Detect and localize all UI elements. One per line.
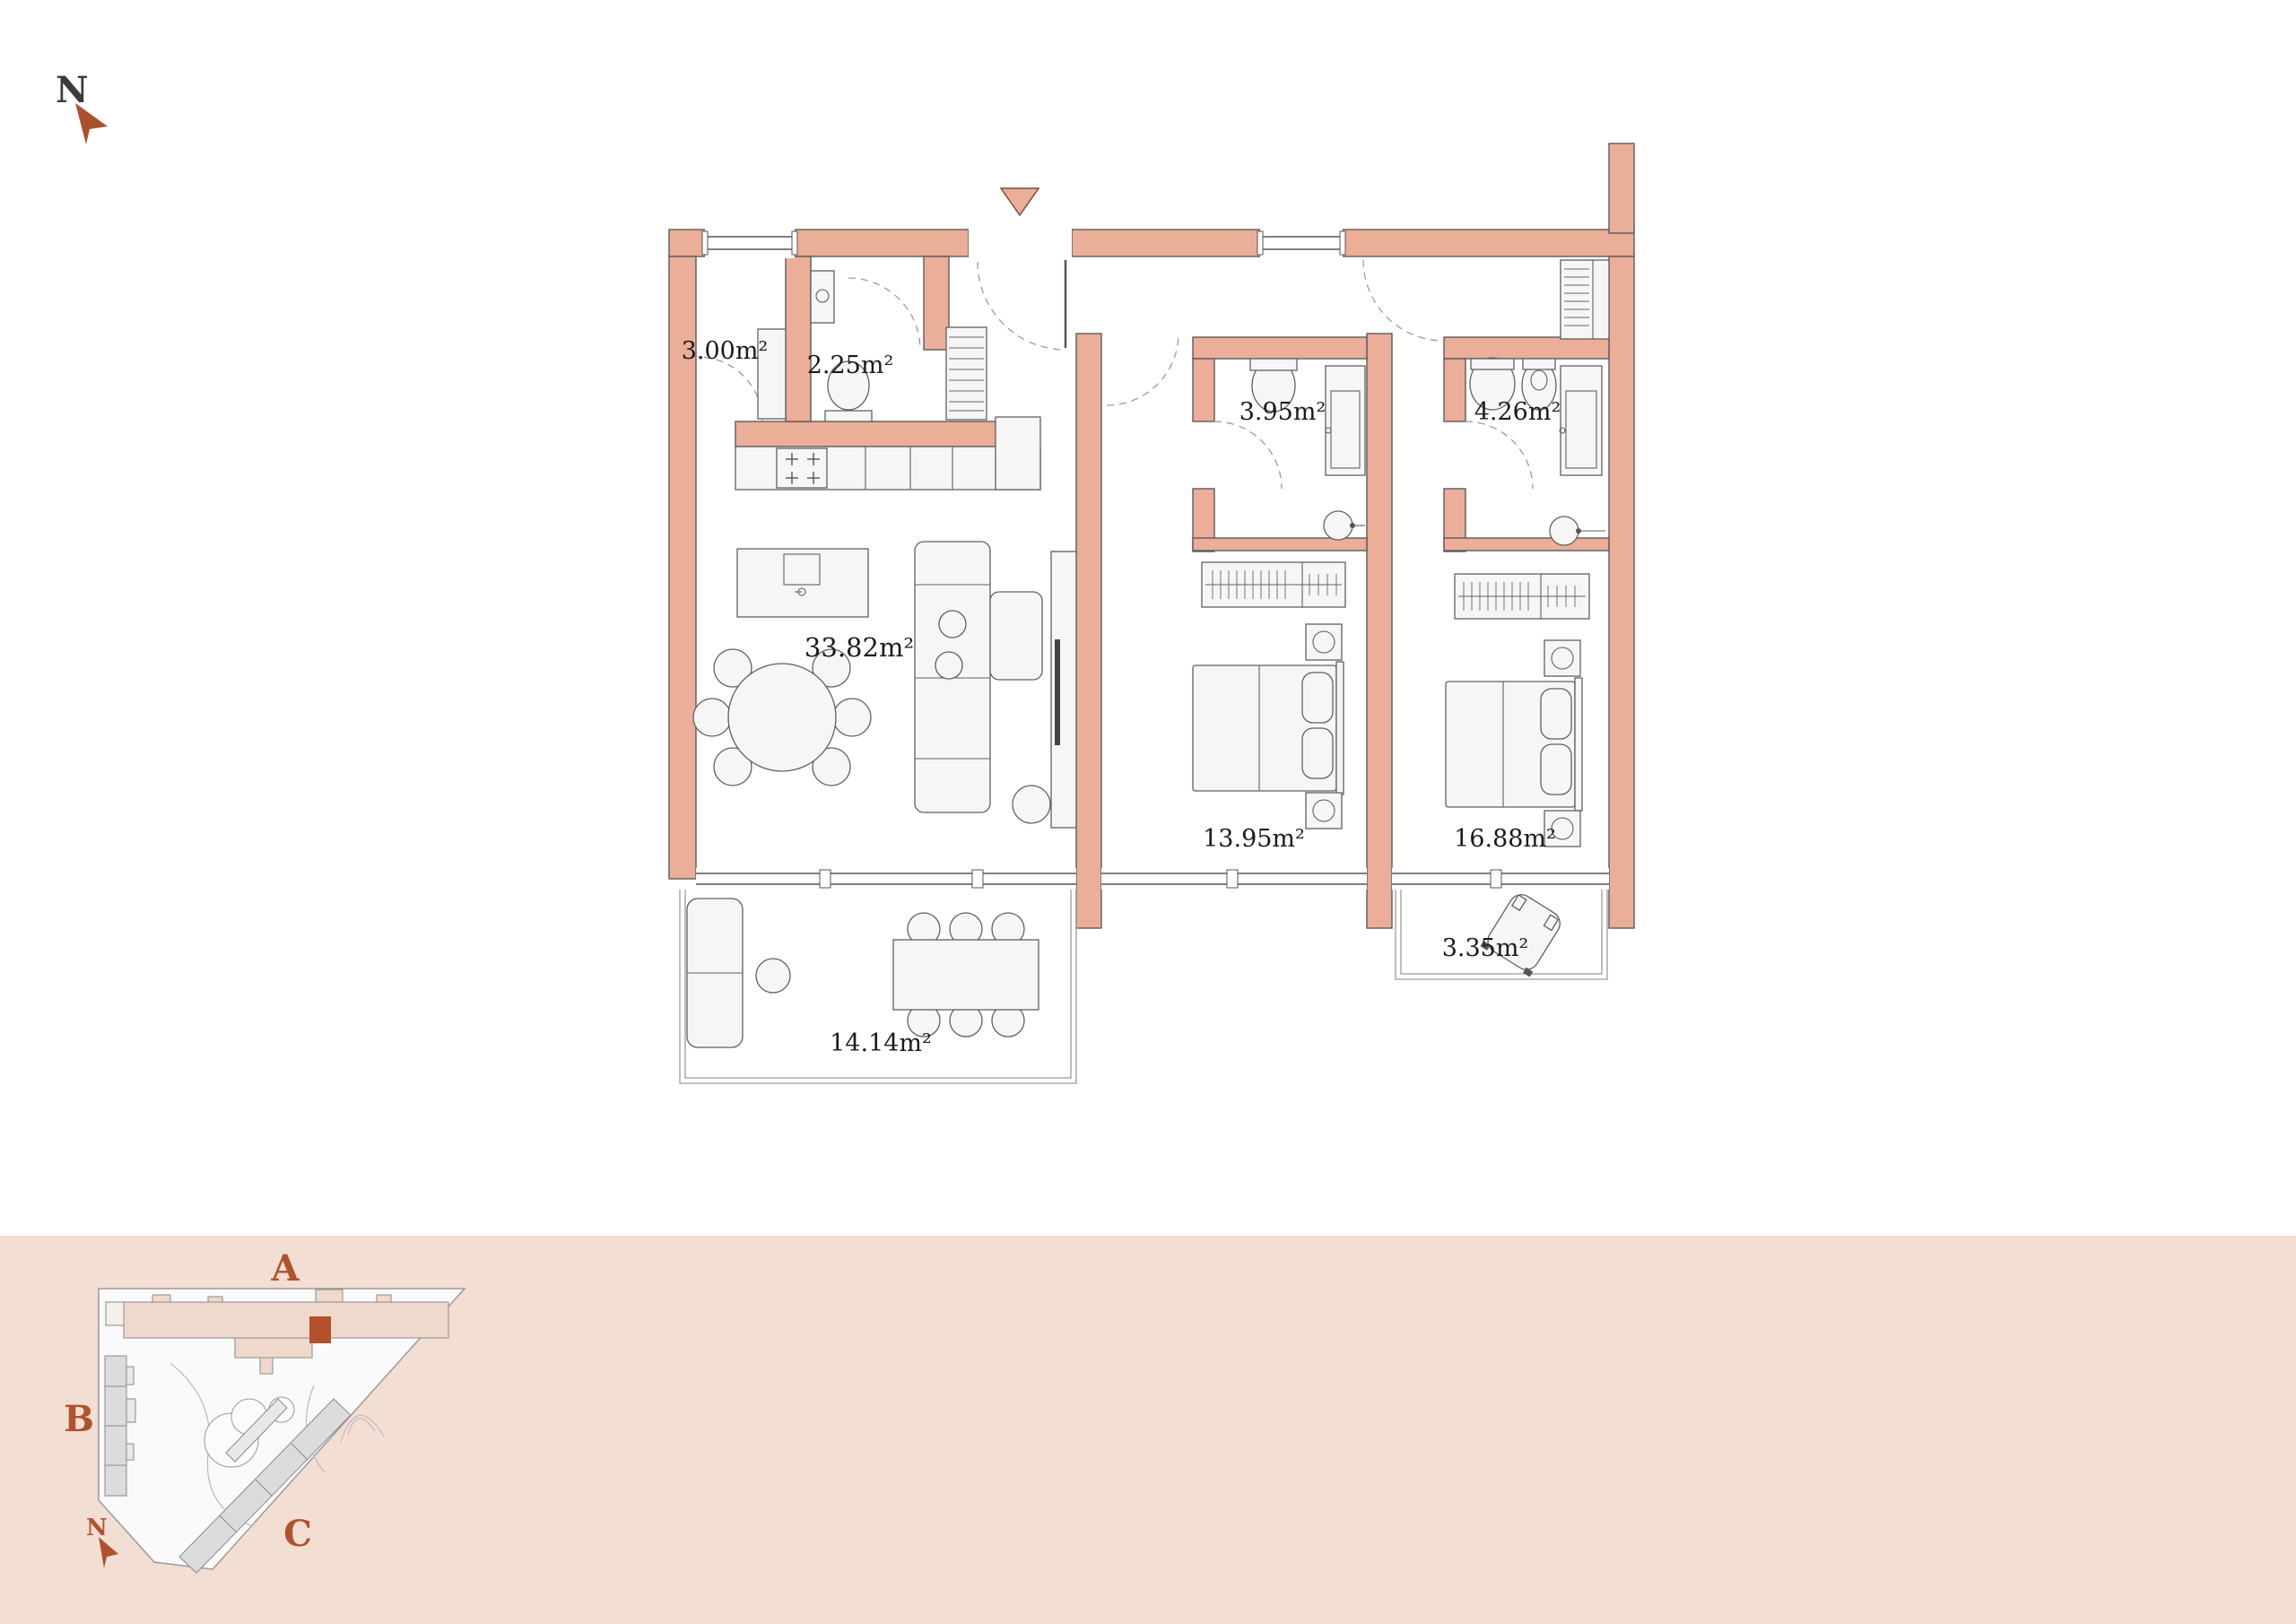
window-bedroom-2	[1392, 868, 1609, 890]
site-north-arrow: N	[86, 1515, 118, 1568]
window-top-left	[702, 228, 797, 258]
label-terrace: 14.14m²	[830, 1029, 932, 1057]
north-arrow-icon	[75, 103, 108, 144]
bed-1	[1193, 662, 1344, 795]
walls	[669, 143, 1634, 928]
label-bedroom-2: 16.88m²	[1454, 825, 1556, 853]
label-balcony: 3.35m²	[1442, 934, 1529, 962]
entry-closet	[1561, 260, 1609, 339]
side-table	[756, 959, 790, 993]
site-label-a: A	[270, 1247, 300, 1290]
entrance-marker-icon	[1001, 188, 1039, 215]
north-arrow-label: N	[56, 69, 89, 111]
sofa	[915, 542, 1042, 812]
label-bathroom-1: 3.95m²	[1239, 398, 1326, 426]
pouf	[1013, 786, 1050, 823]
label-hall-storage: 3.00m²	[682, 337, 769, 365]
floorplan-sheet: .wall{fill:#EBAE99;stroke:#5b5b5b;stroke…	[0, 0, 2296, 1624]
bedroom-1-furniture	[1193, 562, 1345, 829]
site-label-c: C	[283, 1513, 312, 1555]
bathroom-1-fixtures	[1250, 359, 1365, 540]
bedroom-2-furniture	[1446, 574, 1589, 847]
wardrobe-1	[1202, 562, 1345, 607]
bed-2	[1446, 678, 1582, 811]
label-bedroom-1: 13.95m²	[1203, 825, 1305, 853]
info-band: A B C N T2 Unit BC Bloco / Block A Piso …	[0, 1236, 2296, 1624]
floor-plan: .wall{fill:#EBAE99;stroke:#5b5b5b;stroke…	[0, 0, 2296, 1236]
lounge-chair	[1480, 889, 1565, 977]
outdoor-dining	[893, 913, 1039, 1037]
dining-table	[693, 649, 871, 786]
wardrobe-2	[1455, 574, 1589, 619]
site-north-label: N	[86, 1515, 108, 1541]
stove-icon	[777, 448, 827, 488]
site-label-b: B	[64, 1398, 94, 1440]
glazing-living-terrace	[696, 868, 1076, 890]
site-north-arrow-icon	[99, 1537, 118, 1568]
window-top-mid	[1257, 228, 1345, 258]
north-arrow: N	[56, 69, 108, 144]
outdoor-sofa	[687, 899, 743, 1047]
site-plan: A B C N	[0, 1236, 646, 1624]
label-bathroom-2: 4.26m²	[1474, 398, 1561, 426]
label-living: 33.82m²	[804, 632, 914, 663]
label-guest-wc: 2.25m²	[807, 352, 894, 379]
window-bedroom-1	[1101, 868, 1367, 890]
kitchen-island	[737, 549, 868, 617]
tv-unit	[1051, 551, 1076, 828]
bathroom-2-fixtures	[1470, 358, 1605, 545]
highlighted-unit	[309, 1316, 331, 1343]
